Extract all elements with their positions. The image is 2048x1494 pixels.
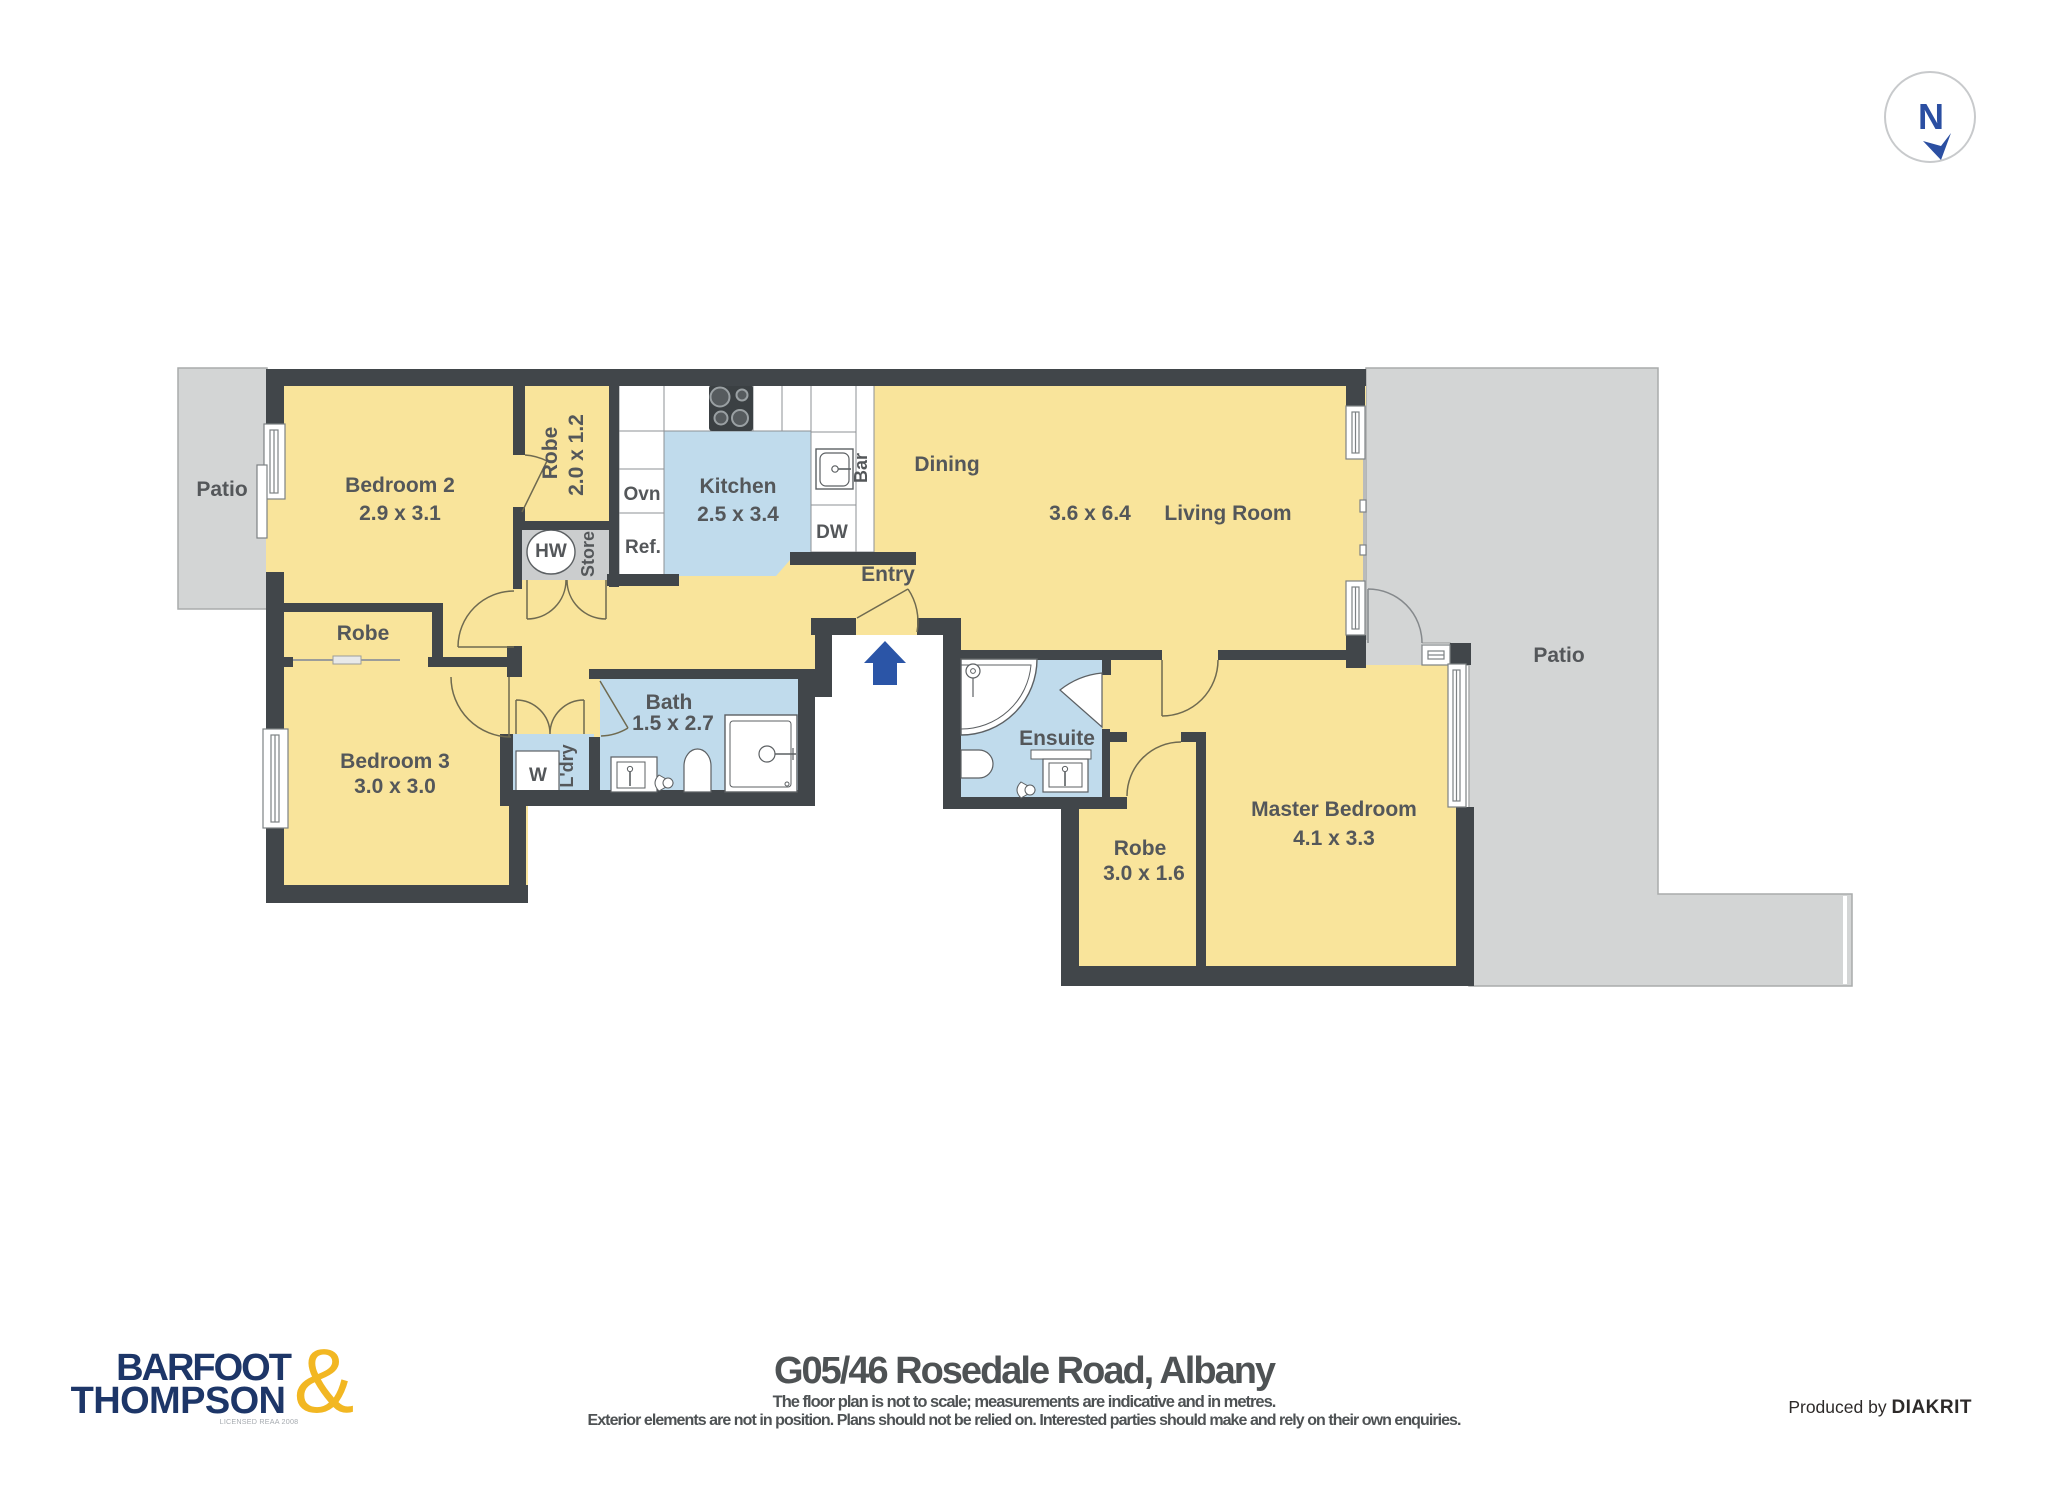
svg-text:1.5 x 2.7: 1.5 x 2.7 [632,712,714,735]
svg-text:Ref.: Ref. [625,537,661,558]
svg-text:2.0 x 1.2: 2.0 x 1.2 [565,414,588,496]
svg-text:Patio: Patio [196,478,247,501]
svg-text:W: W [529,765,547,786]
svg-text:N: N [1918,96,1944,137]
svg-text:Exterior elements are not in p: Exterior elements are not in position. P… [588,1412,1461,1429]
svg-text:Living Room: Living Room [1164,502,1291,525]
svg-text:DW: DW [816,522,848,543]
svg-text:HW: HW [535,541,567,562]
svg-text:LICENSED REAA 2008: LICENSED REAA 2008 [220,1417,299,1426]
svg-text:Entry: Entry [861,563,915,586]
svg-text:Dining: Dining [914,453,979,476]
svg-text:Robe: Robe [1114,837,1167,860]
svg-text:THOMPSON: THOMPSON [71,1380,286,1422]
svg-text:&: & [294,1331,355,1432]
svg-text:Bedroom 2: Bedroom 2 [345,474,455,497]
svg-text:Patio: Patio [1533,644,1584,667]
svg-text:2.9 x 3.1: 2.9 x 3.1 [359,502,441,525]
svg-text:3.6 x 6.4: 3.6 x 6.4 [1049,502,1131,525]
svg-text:4.1 x 3.3: 4.1 x 3.3 [1293,827,1375,850]
svg-text:Robe: Robe [337,622,390,645]
svg-text:Bedroom 3: Bedroom 3 [340,750,450,773]
svg-text:The floor plan is not to scale: The floor plan is not to scale; measurem… [773,1393,1276,1411]
svg-text:Robe: Robe [539,427,562,480]
svg-text:Ovn: Ovn [624,484,661,505]
svg-text:Ensuite: Ensuite [1019,727,1095,750]
svg-text:L'dry: L'dry [557,744,577,787]
svg-text:3.0 x 1.6: 3.0 x 1.6 [1103,862,1185,885]
svg-text:Store: Store [578,531,598,577]
svg-text:3.0 x 3.0: 3.0 x 3.0 [354,775,436,798]
svg-text:Kitchen: Kitchen [699,475,776,498]
svg-text:G05/46 Rosedale Road, Albany: G05/46 Rosedale Road, Albany [774,1350,1276,1392]
svg-text:Produced by DIAKRIT: Produced by DIAKRIT [1788,1397,1972,1418]
svg-text:Bath: Bath [646,691,693,714]
svg-text:Master Bedroom: Master Bedroom [1251,798,1417,821]
svg-text:Bar: Bar [851,453,871,483]
svg-text:2.5 x 3.4: 2.5 x 3.4 [697,503,779,526]
